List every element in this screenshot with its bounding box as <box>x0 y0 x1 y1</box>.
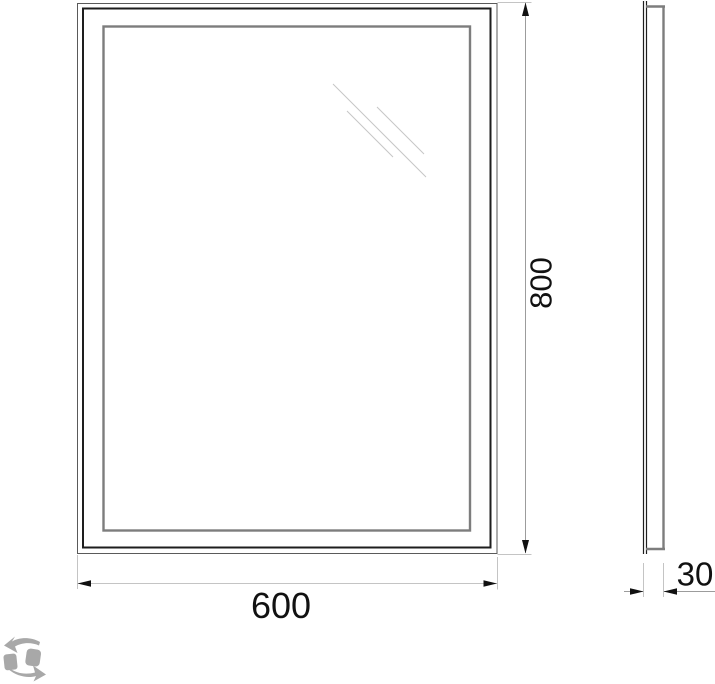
hatch-line <box>347 111 393 157</box>
hatch-line <box>333 84 426 177</box>
side-view <box>644 1 666 554</box>
front-glass-edge <box>104 27 471 531</box>
front-view <box>78 4 498 554</box>
watermark-right-segment <box>25 648 42 667</box>
depth-arrow-left <box>630 588 644 595</box>
hatch-line <box>377 107 424 154</box>
height-arrow-down <box>522 540 529 554</box>
width-arrow-left <box>78 580 92 587</box>
depth-arrow-right <box>664 588 678 595</box>
front-outer-edge <box>78 4 498 554</box>
depth-dimension-label: 30 <box>677 558 714 591</box>
drawing-linework <box>0 0 715 684</box>
recycle-arrows-icon <box>3 637 46 682</box>
watermark-left-segment <box>3 653 18 670</box>
height-dimension-label: 800 <box>526 257 557 309</box>
width-dimension-label: 600 <box>251 588 311 624</box>
height-arrow-up <box>522 3 529 17</box>
technical-drawing-canvas: 600 800 30 <box>0 0 715 684</box>
width-arrow-right <box>484 580 498 587</box>
front-frame-edge <box>83 9 491 548</box>
glass-reflection-hatch <box>333 84 426 177</box>
